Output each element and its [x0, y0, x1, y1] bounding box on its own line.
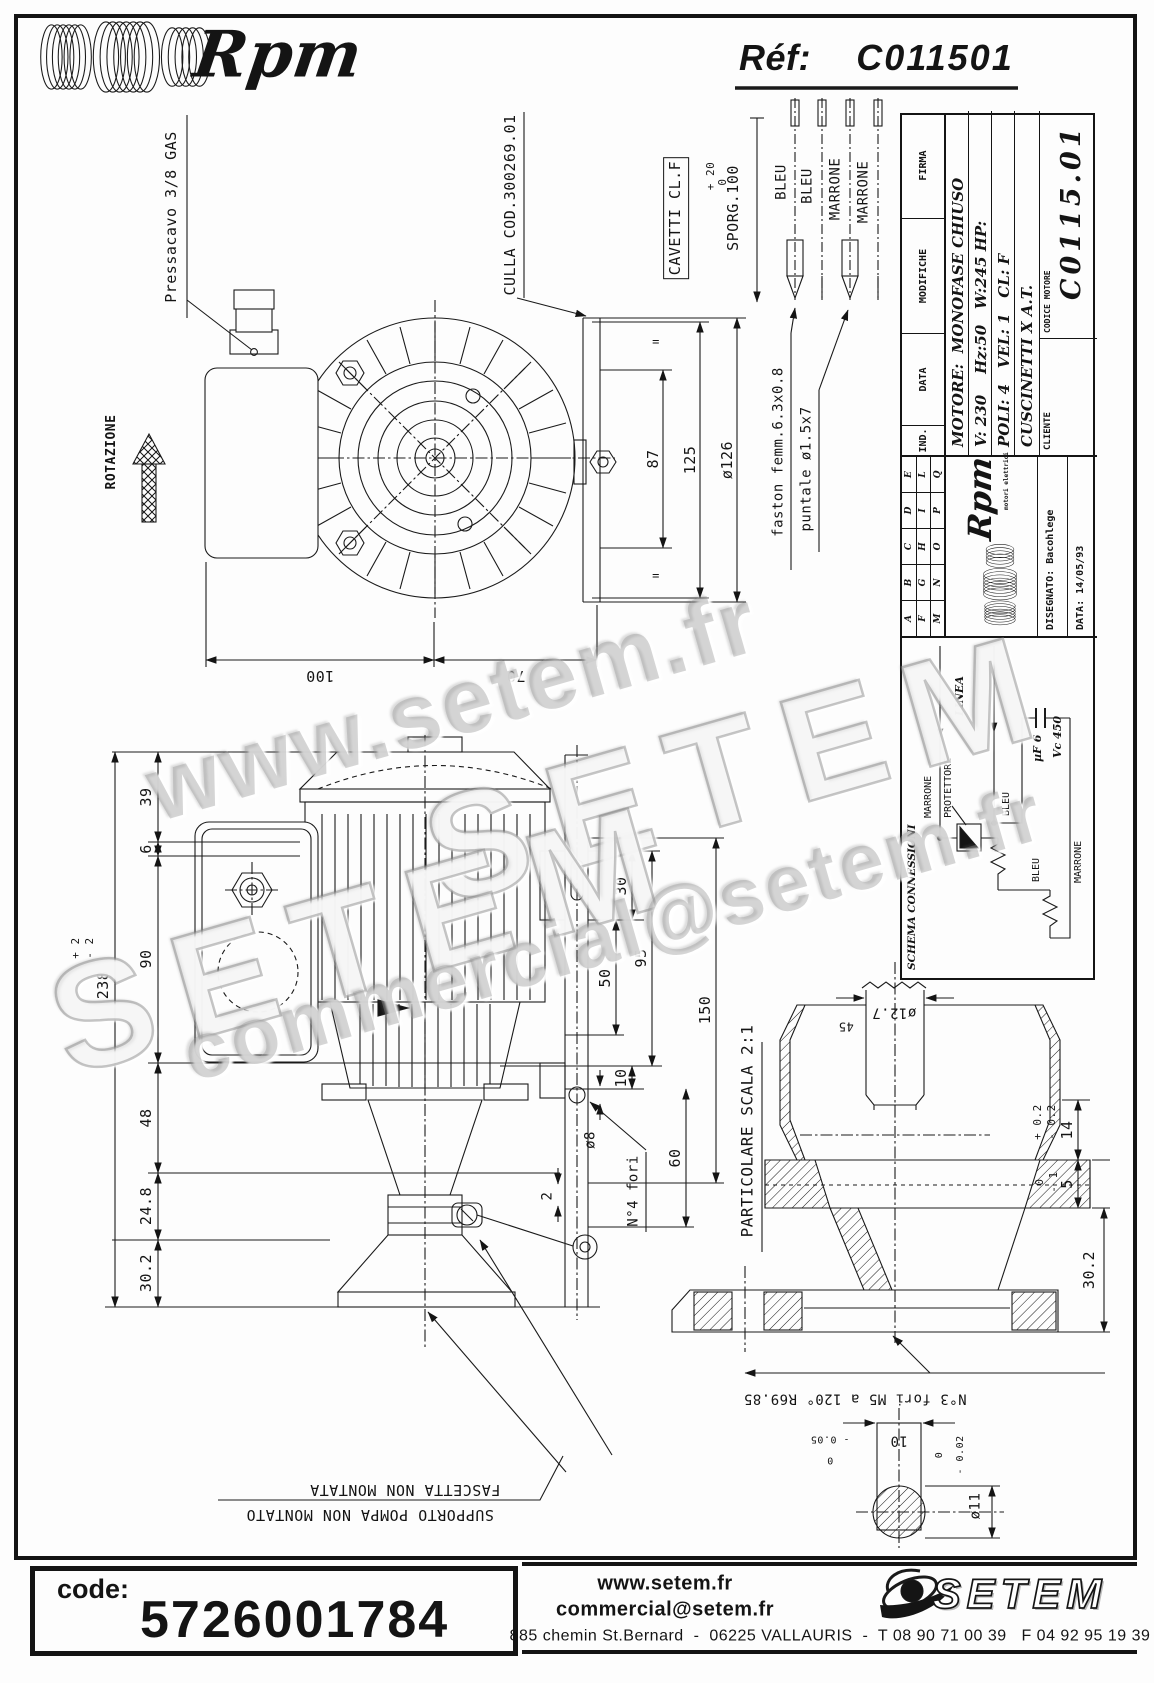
schema-vc: Vc 450	[1052, 716, 1064, 758]
rev-letter: N	[931, 564, 946, 600]
rev-letter: E	[902, 456, 917, 492]
rpm-coils-icon	[41, 22, 210, 92]
code-label: code:	[57, 1575, 129, 1603]
rev-letter: F	[917, 600, 932, 636]
footer-address: 885 chemin St.Bernard - 06225 VALLAURIS …	[510, 1629, 1151, 1646]
equal-mark-top: =	[652, 336, 660, 349]
dim-o12-7: ø12.7	[872, 1005, 917, 1020]
title-block-rotated: SCHEMA CONNESSIONI LINEA MARRONE PROTETT…	[900, 113, 1095, 980]
revision-strip: ABCDE FGHIL MNOPQ IND. DATA MODIFICHE FI…	[902, 113, 946, 636]
tb-rpm-logo: Rpm	[964, 455, 998, 543]
pressacavo-note: Pressacavo 3/8 GAS	[164, 131, 180, 303]
tol-238-minus: - 2	[84, 937, 96, 958]
revision-letter-grid: ABCDE FGHIL MNOPQ	[902, 456, 946, 636]
schema-marrone-2: MARRONE	[1074, 841, 1085, 883]
disegnato-label: DISEGNATO: Bacohlege	[1046, 510, 1057, 630]
dim-70: 70	[506, 667, 525, 683]
codice-motore-label: CODICE MOTORE	[1044, 270, 1052, 333]
tb-rpm-sub: motori elettrici	[1004, 452, 1010, 510]
ref-value: C011501	[856, 39, 1013, 77]
col-firma: FIRMA	[902, 113, 946, 219]
note-fascetta: FASCETTA NON MONTATA	[310, 1481, 501, 1497]
title-block: SCHEMA CONNESSIONI LINEA MARRONE PROTETT…	[900, 113, 1095, 980]
ind-label: IND.	[918, 428, 929, 452]
rev-letter: C	[902, 528, 917, 564]
cliente-cell: CLIENTE	[1039, 338, 1097, 455]
note-3-fori: N°3 fori M5 a 120° R69.85	[743, 1391, 966, 1406]
spec-poli: POLI: 4 VEL: 1 CL: F	[992, 111, 1015, 455]
rev-letter: D	[902, 492, 917, 528]
rotazione-label: ROTAZIONE	[105, 415, 119, 490]
dim-30-2-right: 30.2	[1082, 1251, 1098, 1289]
dim-60: 60	[668, 1148, 684, 1167]
footer-bottom-rule	[522, 1650, 1137, 1654]
detail-title: PARTICOLARE SCALA 2:1	[740, 1025, 757, 1238]
side-view-motor	[105, 735, 724, 1500]
rev-letter: I	[917, 492, 932, 528]
tol-10-block: 0 - 0.05	[810, 1423, 875, 1476]
dim-30: 30	[614, 876, 630, 895]
dim-48: 48	[139, 1108, 155, 1127]
tol-5-zero: 0	[1034, 1178, 1046, 1185]
spec-cuscinetti: CUSCINETTI X A.T.	[1015, 111, 1039, 455]
tol-11-minus: - 0.02	[954, 1435, 965, 1474]
dim-100: 100	[306, 667, 335, 683]
rev-letter: O	[931, 528, 946, 564]
dim-10-shaft: 10	[890, 1433, 908, 1448]
note-supporto: SUPPORTO POMPA NON MONTATO	[246, 1506, 494, 1522]
footer-email: commercial@setem.fr	[556, 1600, 774, 1621]
dim-o8: ø8	[584, 1131, 599, 1149]
puntale-note: puntale ø1.5x7	[800, 406, 815, 531]
schema-bleu-1: BLEU	[1002, 792, 1013, 816]
tol-11-zero: 0	[933, 1452, 944, 1459]
footer-site: www.setem.fr	[597, 1574, 732, 1595]
wire-label-bleu-1: BLEU	[775, 164, 790, 200]
ref-label: Réf:	[739, 39, 811, 77]
dim-2: 2	[541, 1192, 556, 1201]
dim-30-2-left: 30.2	[139, 1254, 155, 1292]
schema-bleu-2: BLEU	[1032, 858, 1043, 882]
code-value: 5726001784	[140, 1593, 449, 1648]
dim-90: 90	[139, 949, 155, 968]
culla-note: CULLA COD.300269.01	[503, 114, 519, 295]
cavetti-note: CAVETTI CL.F	[663, 157, 689, 279]
schema-title: SCHEMA CONNESSIONI	[907, 825, 918, 971]
cliente-label: CLIENTE	[1044, 412, 1053, 450]
schema-uf: µF 6	[1032, 735, 1044, 762]
data-col-label: DATA	[918, 367, 929, 391]
rev-letter: H	[917, 528, 932, 564]
col-modifiche: MODIFICHE	[902, 219, 946, 334]
footer-top-rule	[522, 1562, 1137, 1566]
dim-10: 10	[614, 1068, 630, 1087]
dim-6: 6	[139, 844, 155, 854]
frame-left	[14, 14, 18, 1560]
sporg-tol-zero: 0	[717, 178, 729, 185]
wire-label-bleu-2: BLEU	[801, 168, 816, 204]
frame-bottom	[14, 1556, 1137, 1560]
motor-lead-wires	[787, 98, 882, 390]
dim-50: 50	[598, 968, 614, 987]
rev-letter: M	[931, 600, 946, 636]
wire-label-marrone-1: MARRONE	[829, 158, 844, 221]
data-row: DATA: 14/05/93	[1067, 455, 1097, 636]
rev-letter: B	[902, 564, 917, 600]
equal-mark-bottom: =	[652, 570, 660, 583]
tol-14-minus: - 0.2	[1046, 1104, 1058, 1140]
firma-label: FIRMA	[918, 150, 929, 180]
rev-letter: A	[902, 600, 917, 636]
motor-specs: MOTORE: MONOFASE CHIUSO V: 230 Hz:50 W:2…	[946, 111, 1039, 455]
drawn-by-block: Rpm motori elettrici DISEGNATO: Bacohleg…	[946, 455, 1097, 636]
spec-motore: MOTORE: MONOFASE CHIUSO	[946, 111, 969, 455]
rpm-logo-text: Rpm	[190, 21, 367, 88]
spec-volt: V: 230 Hz:50 W:245 HP:	[969, 111, 992, 455]
schema-marrone-1: MARRONE	[924, 776, 935, 818]
chamfer-45: 45	[838, 1020, 853, 1033]
schema-protettore: PROTETTORE	[944, 758, 955, 818]
sporg-tol-plus: + 20	[705, 162, 717, 191]
frame-right	[1133, 14, 1137, 1560]
setem-brand-text: SETEM	[933, 1572, 1108, 1616]
col-data: DATA	[902, 334, 946, 426]
code-box: code: 5726001784	[30, 1566, 518, 1656]
tb-rpm-coils-icon	[982, 542, 1022, 630]
data-value-label: DATA: 14/05/93	[1076, 546, 1087, 630]
faston-note: faston femm.6.3x0.8	[772, 367, 787, 537]
frame-top	[14, 14, 1137, 18]
rev-letter: P	[931, 492, 946, 528]
dim-14: 14	[1060, 1120, 1076, 1139]
tol-11-block: 0 - 0.02	[924, 1435, 977, 1500]
tol-10-zero: 0	[827, 1455, 834, 1466]
drawing-sheet: Rpm Réf: C011501 Pressacavo 3/8 GAS ROTA…	[0, 0, 1154, 1683]
dim-125: 125	[683, 446, 699, 475]
dim-150: 150	[698, 996, 714, 1025]
tol-10-minus: - 0.05	[810, 1434, 849, 1445]
note-4-fori: N°4 fori	[627, 1155, 642, 1226]
dim-95: 95	[634, 948, 650, 967]
dim-o126: ø126	[720, 441, 736, 479]
wire-label-marrone-2: MARRONE	[857, 161, 872, 224]
modifiche-label: MODIFICHE	[918, 249, 929, 303]
rev-letter: L	[917, 456, 932, 492]
disegnato-row: DISEGNATO: Bacohlege	[1037, 455, 1067, 636]
dim-39: 39	[139, 787, 155, 806]
dim-24-8: 24.8	[139, 1187, 155, 1225]
col-ind: IND.	[902, 426, 946, 456]
codice-motore-value: C0115.01	[1058, 124, 1086, 300]
dim-238: 238	[96, 971, 112, 1000]
tol-14-plus: + 0.2	[1032, 1104, 1044, 1140]
dim-5: 5	[1060, 1179, 1076, 1189]
rev-letter: Q	[931, 456, 946, 492]
tol-238-plus: + 2	[70, 937, 82, 958]
codice-motore-cell: CODICE MOTORE C0115.01	[1039, 111, 1097, 338]
schema-box: SCHEMA CONNESSIONI LINEA MARRONE PROTETT…	[902, 636, 1097, 978]
dim-87: 87	[646, 449, 662, 468]
rev-letter: G	[917, 564, 932, 600]
schema-linea: LINEA	[954, 676, 966, 716]
